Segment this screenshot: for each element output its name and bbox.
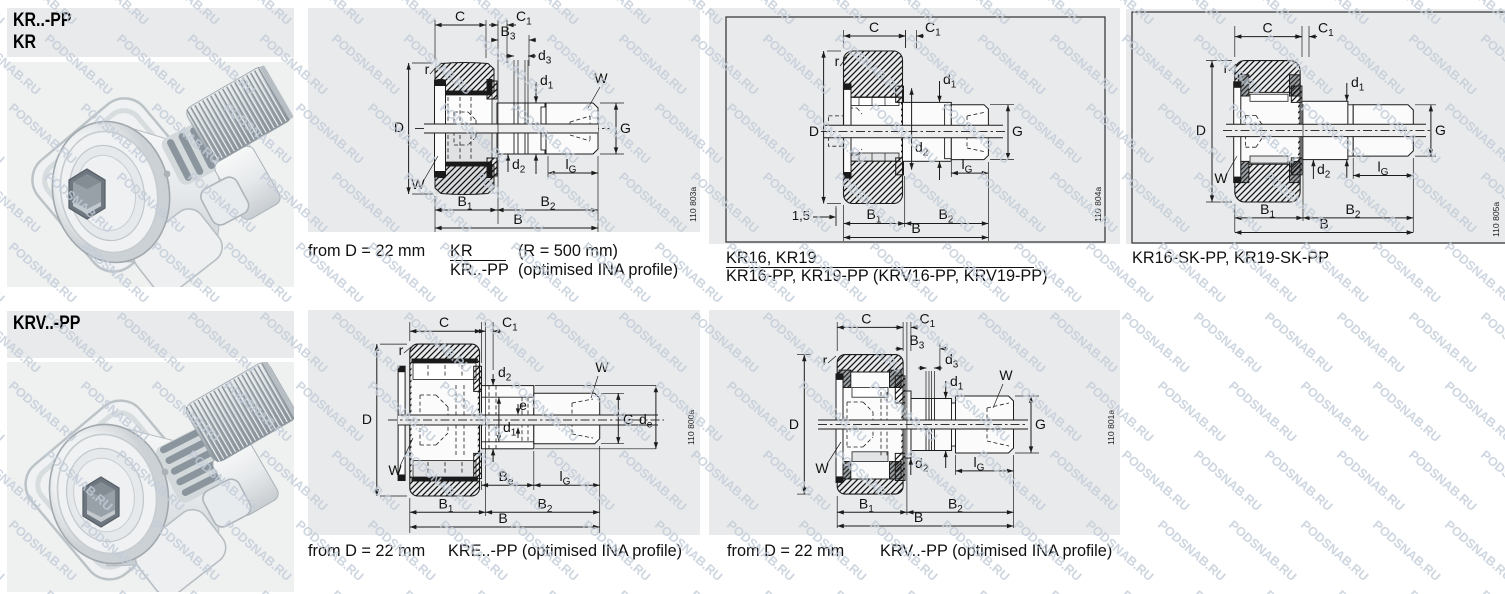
svg-text:PODSNAB.RU: PODSNAB.RU [1119, 310, 1192, 376]
svg-text:PODSNAB.RU: PODSNAB.RU [760, 588, 833, 594]
svg-text:B3: B3 [909, 332, 924, 352]
svg-text:PODSNAB.RU: PODSNAB.RU [1262, 588, 1335, 594]
svg-text:B: B [498, 510, 507, 526]
svg-text:r: r [835, 53, 840, 69]
svg-text:C: C [861, 310, 871, 326]
svg-text:PODSNAB.RU: PODSNAB.RU [1406, 448, 1479, 514]
svg-text:PODSNAB.RU: PODSNAB.RU [473, 588, 546, 594]
svg-text:W: W [815, 460, 829, 476]
svg-text:PODSNAB.RU: PODSNAB.RU [1370, 518, 1443, 584]
svg-text:W: W [411, 176, 425, 192]
svg-text:de: de [639, 411, 653, 431]
svg-text:d3: d3 [945, 351, 959, 371]
svg-text:d2: d2 [915, 455, 929, 475]
svg-text:PODSNAB.RU: PODSNAB.RU [1191, 310, 1264, 376]
svg-text:d1: d1 [943, 71, 957, 91]
svg-text:C1: C1 [920, 310, 936, 330]
svg-text:PODSNAB.RU: PODSNAB.RU [401, 588, 474, 594]
svg-text:B: B [1319, 216, 1328, 232]
svg-text:PODSNAB.RU: PODSNAB.RU [1191, 448, 1264, 514]
svg-text:C: C [869, 19, 879, 35]
svg-text:r: r [425, 61, 430, 77]
svg-text:W: W [1214, 170, 1228, 186]
svg-text:PODSNAB.RU: PODSNAB.RU [1478, 448, 1505, 514]
svg-text:PODSNAB.RU: PODSNAB.RU [544, 588, 617, 594]
svg-text:110 805a: 110 805a [1491, 202, 1501, 237]
svg-text:d3: d3 [538, 47, 552, 67]
svg-text:PODSNAB.RU: PODSNAB.RU [1478, 588, 1505, 594]
svg-text:PODSNAB.RU: PODSNAB.RU [1226, 518, 1299, 584]
svg-text:W: W [388, 462, 402, 478]
svg-text:PODSNAB.RU: PODSNAB.RU [1442, 518, 1505, 584]
svg-text:PODSNAB.RU: PODSNAB.RU [1334, 588, 1407, 594]
svg-text:W: W [594, 70, 608, 86]
svg-text:G: G [1035, 416, 1046, 432]
svg-text:D: D [789, 416, 799, 432]
svg-text:PODSNAB.RU: PODSNAB.RU [1442, 240, 1505, 306]
svg-text:PODSNAB.RU: PODSNAB.RU [903, 588, 976, 594]
svg-text:PODSNAB.RU: PODSNAB.RU [1334, 448, 1407, 514]
svg-text:PODSNAB.RU: PODSNAB.RU [1370, 379, 1443, 445]
svg-text:PODSNAB.RU: PODSNAB.RU [1262, 310, 1335, 376]
svg-text:C: C [439, 314, 449, 330]
svg-text:B1: B1 [867, 206, 882, 226]
svg-text:C: C [455, 8, 465, 24]
svg-text:C1: C1 [502, 314, 518, 334]
svg-text:PODSNAB.RU: PODSNAB.RU [975, 588, 1048, 594]
svg-text:G: G [1435, 122, 1446, 138]
svg-text:D: D [394, 119, 404, 135]
svg-text:110 801a: 110 801a [1106, 410, 1116, 445]
svg-text:PODSNAB.RU: PODSNAB.RU [329, 588, 402, 594]
svg-text:D: D [1196, 122, 1206, 138]
svg-text:PODSNAB.RU: PODSNAB.RU [1406, 588, 1479, 594]
svg-text:G: G [620, 120, 631, 136]
svg-text:e: e [519, 397, 527, 413]
svg-text:C1: C1 [925, 19, 941, 39]
svg-text:d2: d2 [498, 364, 512, 384]
svg-text:B: B [911, 220, 920, 236]
svg-text:PODSNAB.RU: PODSNAB.RU [616, 588, 689, 594]
svg-text:d1: d1 [1351, 74, 1365, 94]
svg-text:C1: C1 [1318, 20, 1334, 39]
svg-text:d2: d2 [1317, 161, 1331, 181]
svg-text:PODSNAB.RU: PODSNAB.RU [1370, 240, 1443, 306]
svg-text:PODSNAB.RU: PODSNAB.RU [1298, 518, 1371, 584]
svg-text:PODSNAB.RU: PODSNAB.RU [1226, 379, 1299, 445]
svg-text:110 800a: 110 800a [686, 410, 696, 445]
svg-text:C1: C1 [516, 8, 532, 28]
svg-text:PODSNAB.RU: PODSNAB.RU [1334, 310, 1407, 376]
svg-text:lG: lG [560, 468, 571, 488]
svg-text:PODSNAB.RU: PODSNAB.RU [1298, 379, 1371, 445]
svg-text:PODSNAB.RU: PODSNAB.RU [1119, 448, 1192, 514]
svg-text:B: B [513, 211, 522, 227]
svg-text:d1: d1 [950, 373, 964, 393]
svg-text:PODSNAB.RU: PODSNAB.RU [1478, 310, 1505, 376]
svg-text:PODSNAB.RU: PODSNAB.RU [1119, 588, 1192, 594]
svg-text:Be: Be [499, 468, 514, 488]
svg-text:PODSNAB.RU: PODSNAB.RU [1442, 379, 1505, 445]
svg-text:r: r [399, 342, 404, 358]
svg-text:PODSNAB.RU: PODSNAB.RU [832, 588, 905, 594]
svg-text:G: G [623, 411, 634, 427]
svg-text:110 803a: 110 803a [688, 187, 698, 222]
svg-text:D: D [809, 123, 819, 139]
svg-text:d2: d2 [512, 156, 526, 176]
svg-text:W: W [999, 367, 1013, 383]
svg-text:C: C [1263, 20, 1273, 36]
svg-text:1,5: 1,5 [792, 208, 810, 223]
svg-text:W: W [595, 359, 609, 375]
svg-text:PODSNAB.RU: PODSNAB.RU [1155, 518, 1228, 584]
svg-text:d1: d1 [540, 72, 554, 92]
svg-text:PODSNAB.RU: PODSNAB.RU [1047, 588, 1120, 594]
svg-text:PODSNAB.RU: PODSNAB.RU [1262, 448, 1335, 514]
svg-text:r: r [823, 352, 828, 368]
svg-text:PODSNAB.RU: PODSNAB.RU [688, 588, 761, 594]
svg-text:G: G [1012, 123, 1023, 139]
svg-text:B: B [914, 509, 923, 525]
svg-text:r: r [1224, 60, 1229, 76]
svg-text:B2: B2 [939, 206, 954, 226]
svg-text:PODSNAB.RU: PODSNAB.RU [1406, 310, 1479, 376]
svg-text:D: D [362, 411, 372, 427]
svg-text:110 804a: 110 804a [1093, 187, 1103, 222]
svg-text:PODSNAB.RU: PODSNAB.RU [1191, 588, 1264, 594]
svg-text:PODSNAB.RU: PODSNAB.RU [1155, 379, 1228, 445]
